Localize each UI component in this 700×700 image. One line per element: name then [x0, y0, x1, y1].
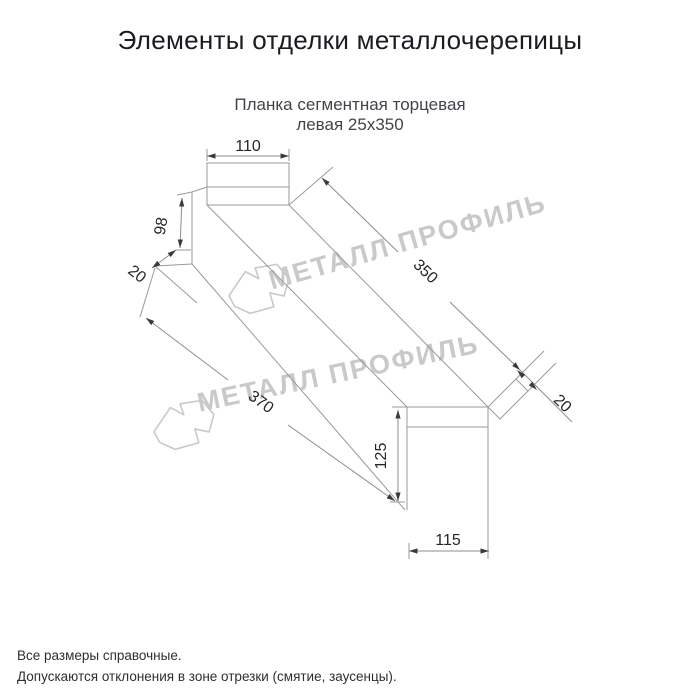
footnotes: Все размеры справочные. Допускаются откл… — [17, 645, 397, 687]
dimension-left-flange: 20 — [125, 250, 176, 287]
dim-label-98: 98 — [152, 216, 172, 237]
dimension-bottom-width: 115 — [409, 532, 489, 559]
dim-label-350: 350 — [410, 256, 441, 287]
dim-label-20-right: 20 — [550, 391, 575, 416]
dim-label-125: 125 — [373, 443, 390, 470]
footnote-line2: Допускаются отклонения в зоне отрезки (с… — [17, 666, 397, 687]
page: Элементы отделки металлочерепицы Планка … — [0, 0, 700, 700]
dimension-left-height: 98 — [152, 192, 192, 250]
dimension-top-width: 110 — [207, 138, 289, 161]
watermark-text: МЕТАЛЛ ПРОФИЛЬ — [265, 187, 550, 295]
dimension-right-flange: 20 — [516, 351, 575, 422]
dim-label-20-left: 20 — [125, 262, 150, 286]
dim-label-115: 115 — [435, 532, 461, 549]
dim-label-110: 110 — [235, 138, 261, 155]
technical-drawing: МЕТАЛЛ ПРОФИЛЬ МЕТАЛЛ ПРОФИЛЬ — [0, 0, 700, 700]
watermark-upper: МЕТАЛЛ ПРОФИЛЬ — [227, 187, 550, 314]
footnote-line1: Все размеры справочные. — [17, 645, 397, 666]
watermark-text: МЕТАЛЛ ПРОФИЛЬ — [194, 329, 481, 418]
watermark-lower: МЕТАЛЛ ПРОФИЛЬ — [152, 329, 482, 451]
